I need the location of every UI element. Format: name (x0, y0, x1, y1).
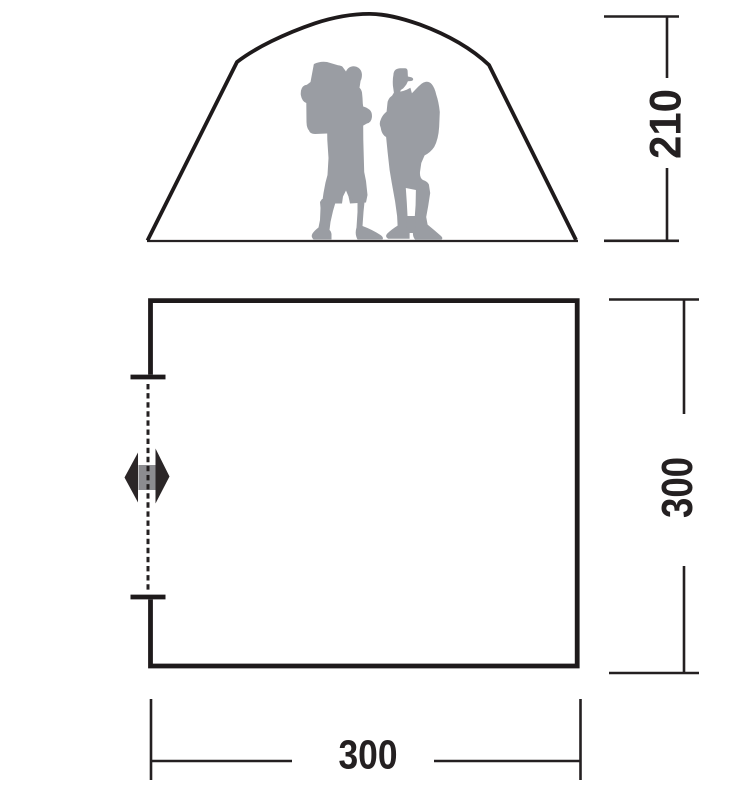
svg-text:210: 210 (642, 89, 691, 159)
svg-text:300: 300 (339, 732, 398, 778)
svg-text:300: 300 (653, 457, 702, 518)
